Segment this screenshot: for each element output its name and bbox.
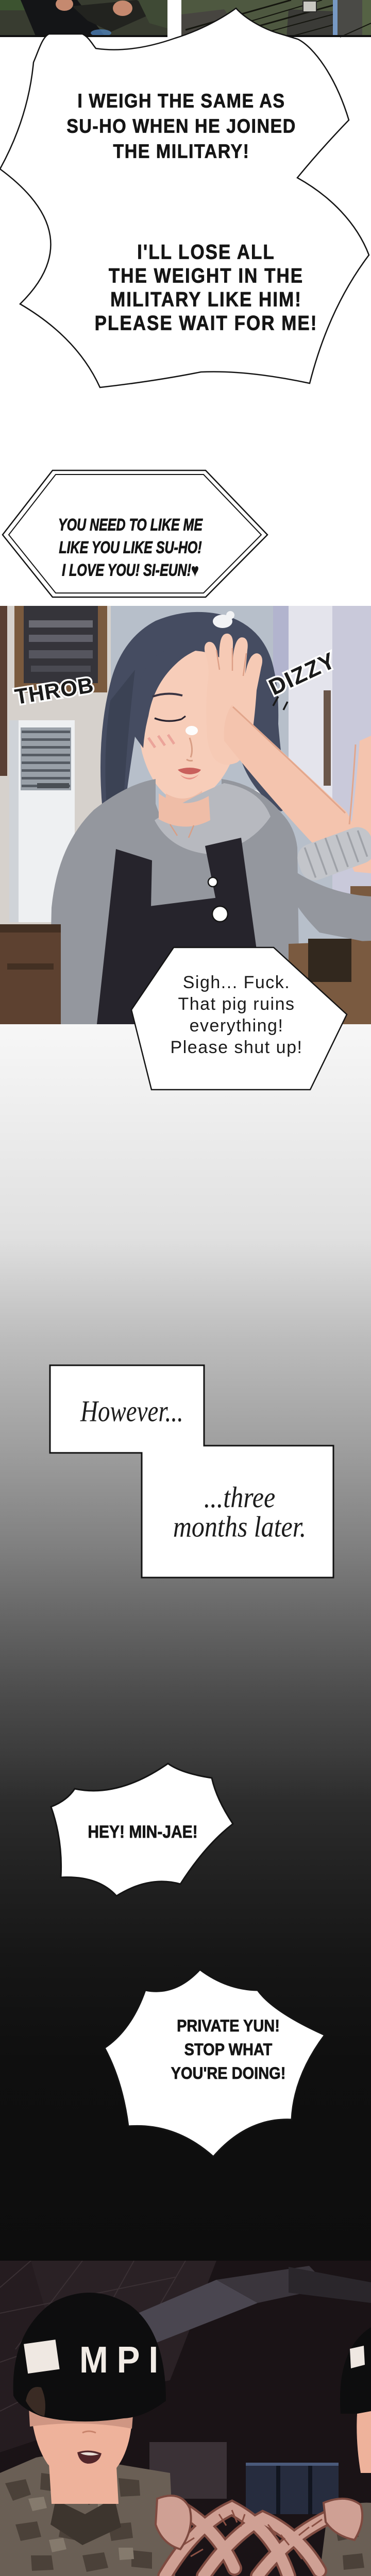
svg-text:MPI: MPI bbox=[79, 2339, 167, 2381]
